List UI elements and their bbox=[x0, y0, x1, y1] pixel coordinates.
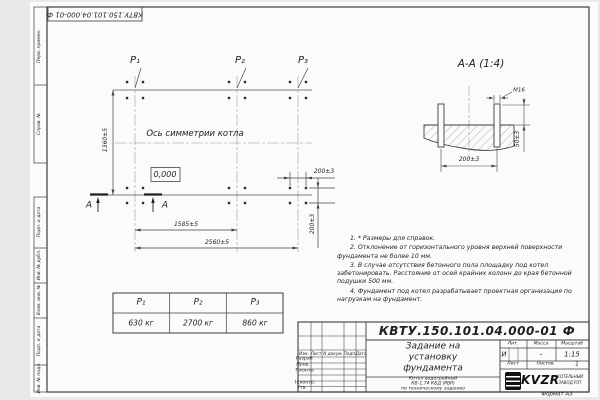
col-header-izm: Изм. bbox=[299, 351, 309, 355]
sheets-value: 1 bbox=[575, 362, 579, 368]
technical-notes: 1. * Размеры для справок. 2. Отклонение … bbox=[337, 235, 594, 305]
sheets-label: Листов bbox=[536, 363, 553, 368]
sidebar-label-inv-dubl: Инв. № дубл. bbox=[38, 250, 43, 281]
col-header-list: Лист bbox=[311, 351, 322, 355]
sidebar-label-vzam-inv: Взам. инв. № bbox=[38, 285, 43, 316]
company-logo-text: KVZR bbox=[521, 373, 560, 387]
dim-50: 50±3 bbox=[515, 131, 521, 147]
note-2: 2. Отклонение от горизонтального уровня … bbox=[337, 244, 594, 261]
load-label-p2: Р₂ bbox=[235, 56, 245, 66]
note-3: 3. В случае отсутствия бетонного пола пл… bbox=[337, 262, 594, 287]
scale-value: 1:15 bbox=[564, 351, 580, 358]
sidebar-label-podp-data-2: Подп. и дата bbox=[38, 326, 43, 357]
sidebar-label-podp-data-1: Подп. и дата bbox=[38, 207, 43, 238]
sidebar-label-sprav-n: Справ. № bbox=[38, 113, 43, 135]
col-header-podp: Подп. bbox=[344, 351, 357, 355]
table-value-p1: 630 кг bbox=[128, 319, 153, 327]
dim-bolt-spacing-y: 200±3 bbox=[310, 214, 316, 234]
sheet-label: Лист bbox=[507, 363, 519, 368]
load-label-p1: Р₁ bbox=[130, 56, 140, 66]
col-header-data: Дата bbox=[356, 351, 367, 355]
note-1: 1. * Размеры для справок. bbox=[337, 235, 594, 243]
col-header-ndokum: N докум. bbox=[323, 351, 342, 355]
thread-callout-m16: М16 bbox=[513, 88, 525, 94]
row-label-razrab: Разраб. bbox=[296, 358, 314, 363]
dim-200-section: 200±3 bbox=[459, 157, 479, 163]
row-label-prov: Пров. bbox=[296, 364, 309, 369]
doc-title-line2: установку bbox=[409, 354, 458, 363]
mass-value: - bbox=[540, 351, 543, 358]
lit-value: И bbox=[501, 351, 506, 358]
drawing-sheet: КВТУ.150.101.04.000-01 Ф Перв. примен. С… bbox=[0, 0, 600, 400]
table-value-p3: 860 кг bbox=[242, 319, 267, 327]
format-label: Формат А3 bbox=[541, 392, 572, 398]
symmetry-axis-label: Ось симметрии котла bbox=[146, 130, 243, 139]
note-4: 4. Фундамент под котел разрабатывает про… bbox=[337, 288, 594, 305]
scale-header: Масштаб bbox=[561, 342, 583, 347]
table-header-p3: Р₃ bbox=[250, 299, 259, 308]
row-label-tkontr: Т.контр. bbox=[295, 370, 315, 375]
section-title: А-А (1:4) bbox=[458, 59, 505, 70]
company-desc-line2: ЗАВОД РЭТ bbox=[558, 381, 581, 385]
doc-title-line3: фундамента bbox=[403, 365, 463, 374]
dim-bolt-spacing-x: 200±3 bbox=[314, 169, 334, 175]
elevation-mark: 0,000 bbox=[154, 171, 177, 179]
sidebar-label-perv-primen: Перв. примен. bbox=[38, 29, 43, 63]
mass-header: Масса bbox=[534, 342, 549, 347]
table-value-p2: 2700 кг bbox=[183, 319, 213, 327]
stamp-doc-number: КВТУ.150.101.04.000-01 Ф bbox=[47, 11, 143, 18]
table-header-p1: Р₁ bbox=[136, 299, 145, 308]
load-label-p3: Р₃ bbox=[298, 56, 308, 66]
table-header-p2: Р₂ bbox=[193, 299, 202, 308]
section-letter-right: А bbox=[162, 202, 168, 211]
sidebar-label-inv-podl: Инв. № подл. bbox=[38, 362, 43, 393]
doc-subtitle-line3: по техническому заданию bbox=[401, 388, 465, 393]
doc-title-line1: Задание на bbox=[406, 343, 461, 352]
dim-1360: 1360±5 bbox=[103, 128, 109, 152]
company-logo-icon bbox=[505, 372, 521, 390]
company-desc-line1: КОТЕЛЬНЫЙ bbox=[557, 375, 583, 379]
row-label-utv: Утв. bbox=[297, 387, 307, 392]
section-letter-left: А bbox=[86, 202, 92, 211]
dim-1585: 1585±5 bbox=[174, 222, 198, 228]
lit-header: Лит. bbox=[508, 342, 519, 347]
dim-2560: 2560±5 bbox=[205, 240, 229, 246]
doc-number: КВТУ.150.101.04.000-01 Ф bbox=[379, 325, 575, 337]
